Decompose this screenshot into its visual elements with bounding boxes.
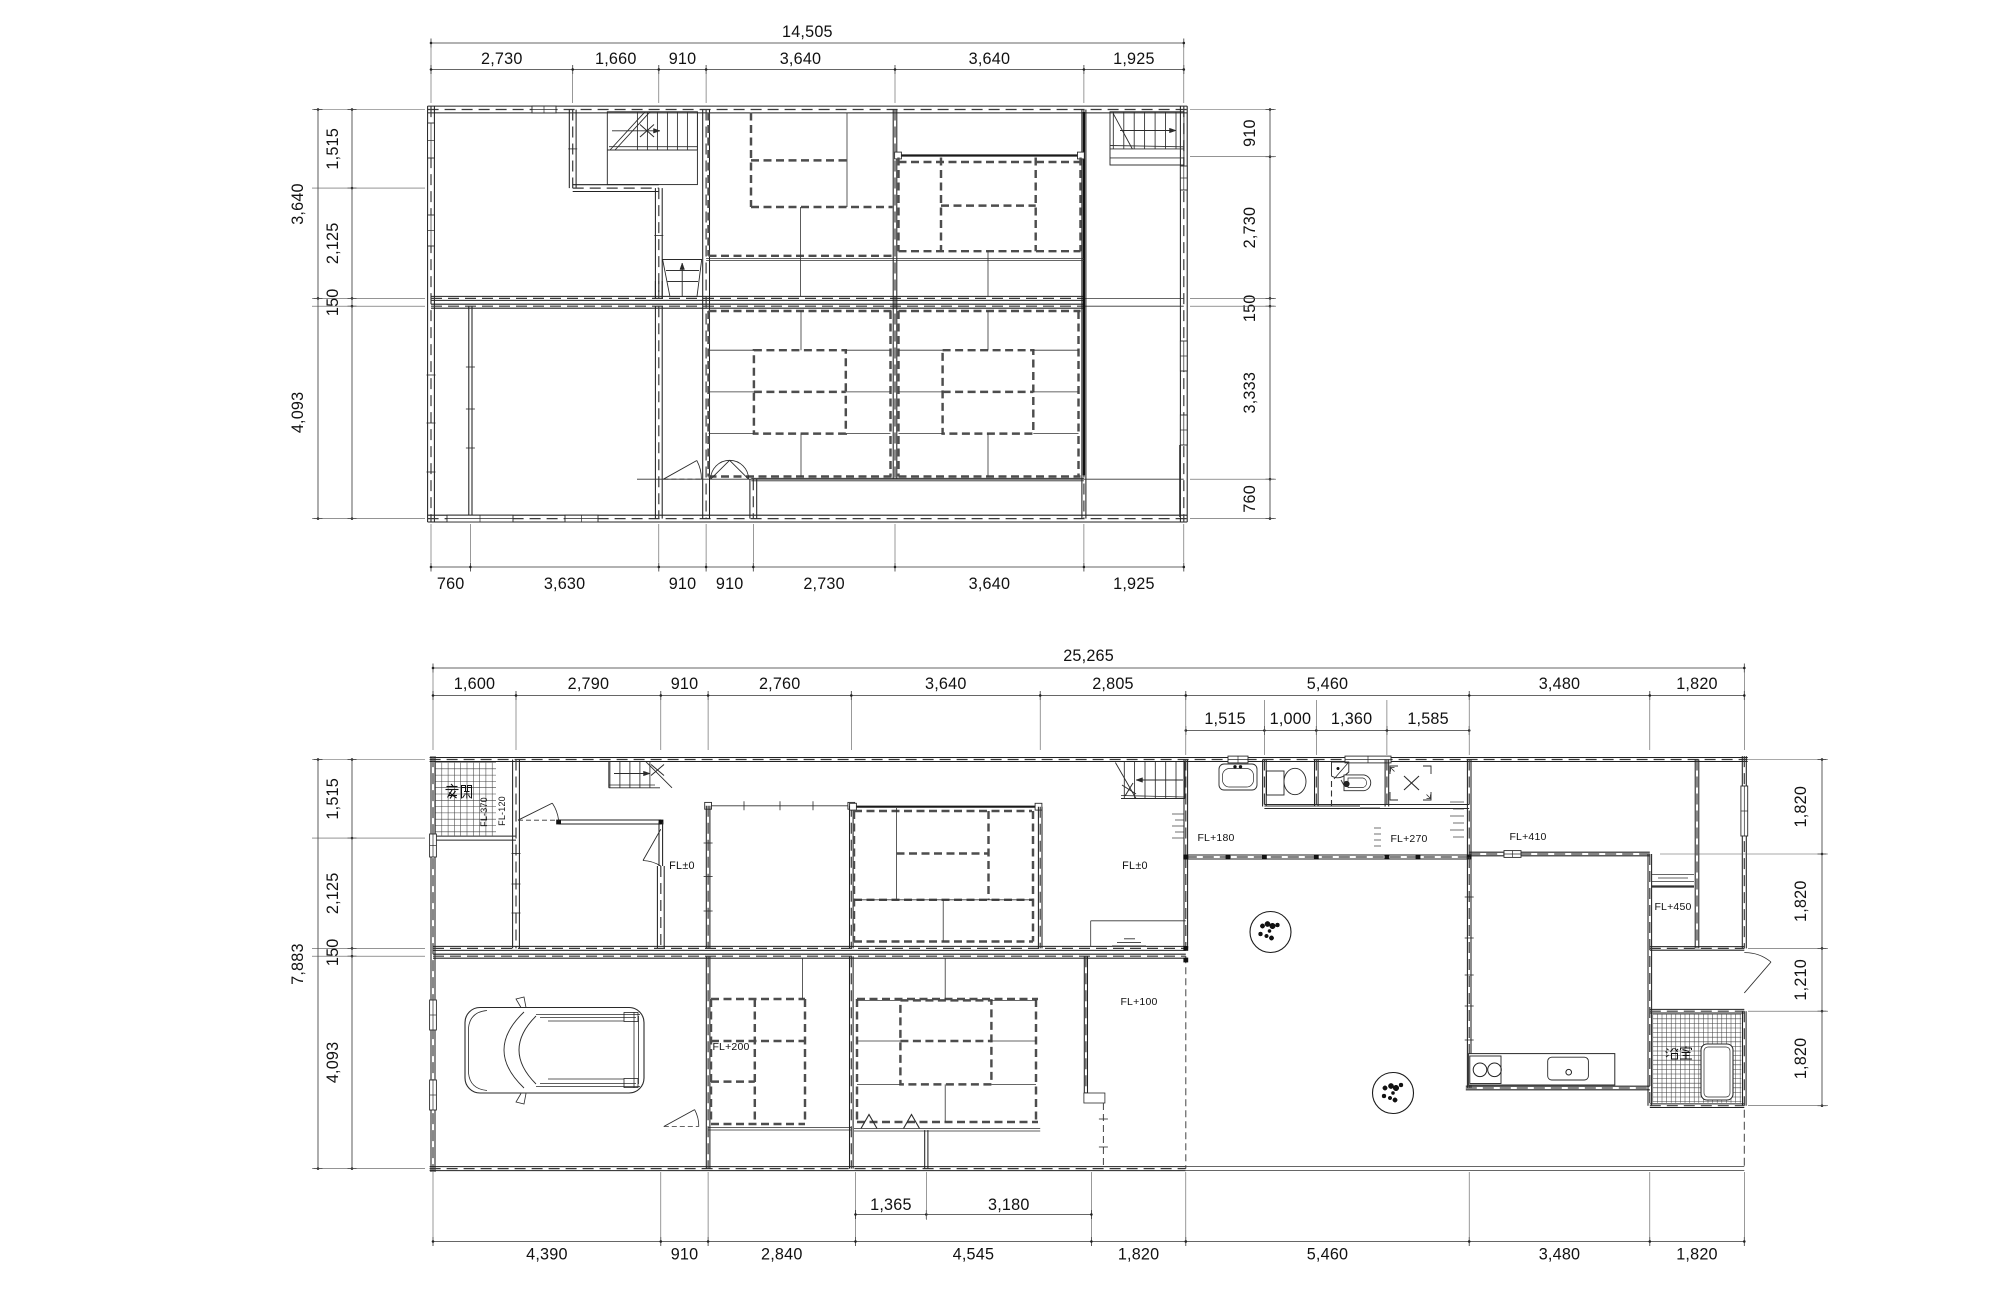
svg-text:2,760: 2,760 (759, 675, 801, 693)
svg-text:FL-120: FL-120 (497, 796, 507, 826)
svg-text:1,360: 1,360 (1331, 710, 1373, 728)
svg-text:FL+450: FL+450 (1654, 901, 1691, 913)
svg-text:1,365: 1,365 (870, 1196, 912, 1214)
svg-text:760: 760 (1241, 485, 1259, 513)
svg-text:910: 910 (669, 50, 697, 68)
svg-text:2,730: 2,730 (481, 50, 523, 68)
svg-text:FL+270: FL+270 (1390, 833, 1427, 845)
svg-text:FL±0: FL±0 (1122, 860, 1148, 872)
svg-text:5,460: 5,460 (1307, 675, 1349, 693)
svg-text:3,180: 3,180 (988, 1196, 1030, 1214)
svg-text:1,515: 1,515 (324, 128, 342, 170)
svg-text:2,790: 2,790 (568, 675, 610, 693)
svg-text:3,640: 3,640 (969, 50, 1011, 68)
svg-text:FL+180: FL+180 (1197, 832, 1234, 844)
svg-text:910: 910 (669, 575, 697, 593)
svg-text:4,545: 4,545 (953, 1246, 995, 1264)
svg-text:910: 910 (671, 675, 699, 693)
svg-text:3,480: 3,480 (1539, 1246, 1581, 1264)
svg-text:1,925: 1,925 (1113, 575, 1155, 593)
svg-text:5,460: 5,460 (1307, 1246, 1349, 1264)
svg-text:3,630: 3,630 (544, 575, 586, 593)
svg-text:910: 910 (716, 575, 744, 593)
svg-text:1,820: 1,820 (1792, 1038, 1810, 1080)
svg-text:2,125: 2,125 (324, 873, 342, 915)
svg-text:4,093: 4,093 (324, 1042, 342, 1084)
svg-text:910: 910 (671, 1246, 699, 1264)
svg-text:25,265: 25,265 (1063, 647, 1114, 665)
svg-text:FL+100: FL+100 (1120, 996, 1157, 1008)
svg-text:150: 150 (324, 938, 342, 966)
svg-text:1,000: 1,000 (1270, 710, 1312, 728)
svg-text:1,600: 1,600 (454, 675, 496, 693)
svg-text:2,125: 2,125 (324, 223, 342, 265)
svg-text:2,730: 2,730 (1241, 207, 1259, 249)
svg-text:2,840: 2,840 (761, 1246, 803, 1264)
svg-text:1,660: 1,660 (595, 50, 637, 68)
svg-text:150: 150 (324, 288, 342, 316)
svg-text:4,093: 4,093 (289, 392, 307, 434)
svg-text:FL+200: FL+200 (712, 1041, 749, 1053)
svg-text:1,925: 1,925 (1113, 50, 1155, 68)
svg-text:1,585: 1,585 (1407, 710, 1449, 728)
svg-text:3,480: 3,480 (1539, 675, 1581, 693)
svg-text:2,805: 2,805 (1092, 675, 1134, 693)
svg-text:7,883: 7,883 (289, 943, 307, 985)
svg-text:FL+410: FL+410 (1509, 831, 1546, 843)
svg-text:3,640: 3,640 (289, 183, 307, 225)
svg-text:1,820: 1,820 (1792, 786, 1810, 828)
svg-text:1,820: 1,820 (1118, 1246, 1160, 1264)
svg-text:1,820: 1,820 (1676, 675, 1718, 693)
svg-text:2,730: 2,730 (803, 575, 845, 593)
svg-text:1,515: 1,515 (1204, 710, 1246, 728)
svg-text:1,515: 1,515 (324, 778, 342, 820)
svg-text:1,210: 1,210 (1792, 959, 1810, 1001)
svg-text:910: 910 (1241, 119, 1259, 147)
svg-text:14,505: 14,505 (782, 23, 833, 41)
svg-text:4,390: 4,390 (526, 1246, 568, 1264)
svg-text:3,333: 3,333 (1241, 372, 1259, 414)
svg-text:3,640: 3,640 (969, 575, 1011, 593)
svg-text:1,820: 1,820 (1792, 880, 1810, 922)
svg-text:FL±0: FL±0 (669, 860, 695, 872)
svg-text:760: 760 (437, 575, 465, 593)
svg-text:1,820: 1,820 (1676, 1246, 1718, 1264)
svg-text:3,640: 3,640 (780, 50, 822, 68)
svg-text:FL-370: FL-370 (479, 797, 489, 827)
svg-text:3,640: 3,640 (925, 675, 967, 693)
